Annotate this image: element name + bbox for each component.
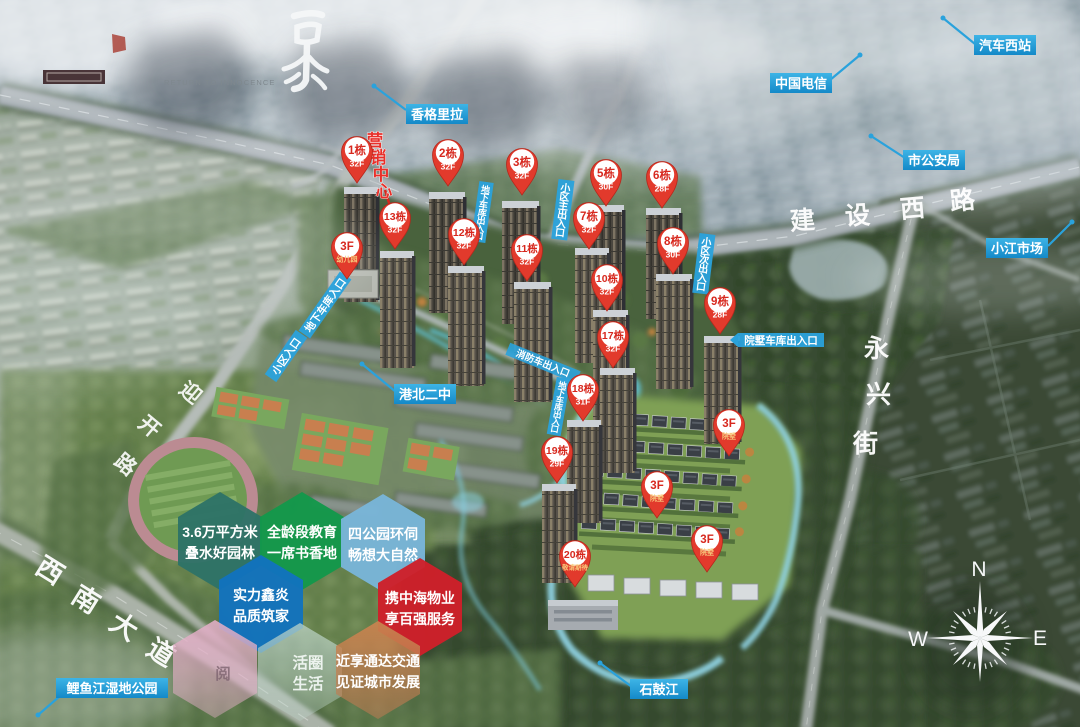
svg-text:港北二中: 港北二中 — [399, 387, 451, 402]
svg-text:32F: 32F — [606, 344, 621, 354]
svg-text:院墅: 院墅 — [722, 432, 736, 441]
svg-text:石鼓江: 石鼓江 — [638, 682, 678, 697]
svg-text:3.6万平方米: 3.6万平方米 — [182, 524, 258, 540]
svg-text:路: 路 — [949, 186, 978, 217]
svg-text:叠水好园林: 叠水好园林 — [185, 545, 255, 561]
svg-text:32F: 32F — [515, 171, 530, 181]
svg-text:28F: 28F — [655, 184, 670, 194]
svg-text:院墅车库出入口: 院墅车库出入口 — [744, 334, 818, 347]
svg-text:19栋: 19栋 — [546, 444, 569, 457]
svg-text:兴: 兴 — [866, 381, 891, 409]
svg-text:西: 西 — [899, 194, 926, 224]
svg-text:5栋: 5栋 — [597, 166, 615, 180]
svg-text:小江市场: 小江市场 — [991, 241, 1043, 256]
svg-text:1栋: 1栋 — [348, 143, 366, 157]
svg-text:敬请期待: 敬请期待 — [561, 563, 589, 572]
svg-text:3F: 3F — [700, 534, 713, 546]
svg-text:实力鑫炎: 实力鑫炎 — [233, 587, 289, 603]
svg-text:设: 设 — [844, 201, 871, 231]
svg-text:18栋: 18栋 — [572, 382, 595, 395]
svg-text:12栋: 12栋 — [453, 226, 476, 239]
svg-text:10栋: 10栋 — [596, 272, 619, 285]
svg-text:RETURN TO INNOCENCE: RETURN TO INNOCENCE — [164, 78, 275, 87]
svg-text:32F: 32F — [441, 162, 456, 172]
svg-text:畅想大自然: 畅想大自然 — [348, 547, 418, 563]
svg-text:32F: 32F — [520, 257, 535, 267]
svg-text:心: 心 — [376, 182, 393, 201]
svg-text:幼儿园: 幼儿园 — [337, 255, 358, 264]
svg-text:31F: 31F — [576, 397, 591, 407]
svg-text:3F: 3F — [650, 480, 663, 492]
svg-text:享百强服务: 享百强服务 — [385, 611, 456, 627]
svg-text:全龄段教育: 全龄段教育 — [266, 524, 337, 540]
svg-text:鲤鱼江湿地公园: 鲤鱼江湿地公园 — [65, 681, 157, 696]
svg-text:N: N — [971, 558, 986, 581]
svg-text:30F: 30F — [666, 250, 681, 260]
svg-text:E: E — [1033, 627, 1047, 650]
svg-text:生活: 生活 — [292, 674, 324, 693]
svg-text:建: 建 — [789, 206, 816, 236]
svg-text:32F: 32F — [582, 225, 597, 235]
svg-text:口: 口 — [554, 228, 565, 240]
svg-text:近享通达交通: 近享通达交通 — [336, 653, 420, 669]
svg-text:口: 口 — [550, 423, 560, 434]
svg-text:一席书香地: 一席书香地 — [267, 545, 337, 561]
svg-text:7栋: 7栋 — [580, 209, 598, 223]
svg-text:9栋: 9栋 — [711, 294, 729, 308]
svg-text:3栋: 3栋 — [513, 155, 531, 169]
svg-text:市公安局: 市公安局 — [908, 153, 960, 168]
svg-text:3F: 3F — [722, 418, 735, 430]
svg-text:中国电信: 中国电信 — [775, 76, 827, 91]
svg-text:2栋: 2栋 — [439, 146, 457, 160]
svg-text:永: 永 — [864, 335, 889, 363]
svg-text:中: 中 — [373, 164, 390, 184]
svg-text:13栋: 13栋 — [384, 210, 407, 223]
svg-text:品质筑家: 品质筑家 — [233, 608, 290, 624]
svg-text:29F: 29F — [550, 459, 565, 469]
svg-text:17栋: 17栋 — [602, 329, 625, 342]
svg-text:32F: 32F — [350, 159, 365, 169]
svg-text:阅: 阅 — [215, 664, 231, 683]
svg-text:口: 口 — [695, 282, 706, 294]
svg-text:32F: 32F — [600, 287, 615, 297]
svg-text:见证城市发展: 见证城市发展 — [336, 674, 420, 690]
svg-text:32F: 32F — [388, 225, 403, 235]
svg-text:香格里拉: 香格里拉 — [410, 107, 463, 122]
svg-text:院墅: 院墅 — [650, 494, 664, 503]
svg-text:院墅: 院墅 — [700, 548, 714, 557]
svg-text:20栋: 20栋 — [564, 548, 587, 561]
svg-text:8栋: 8栋 — [664, 234, 682, 248]
svg-text:街: 街 — [852, 429, 878, 458]
svg-text:活圈: 活圈 — [292, 653, 323, 672]
svg-text:11栋: 11栋 — [516, 242, 538, 255]
svg-text:28F: 28F — [713, 310, 728, 320]
svg-text:6栋: 6栋 — [653, 168, 671, 182]
svg-text:汽车西站: 汽车西站 — [979, 38, 1031, 53]
svg-text:3F: 3F — [340, 241, 353, 253]
svg-text:四公园环伺: 四公园环伺 — [348, 526, 418, 542]
svg-text:32F: 32F — [457, 241, 472, 251]
svg-text:W: W — [908, 628, 928, 651]
svg-text:30F: 30F — [599, 182, 614, 192]
svg-text:携中海物业: 携中海物业 — [385, 590, 455, 606]
